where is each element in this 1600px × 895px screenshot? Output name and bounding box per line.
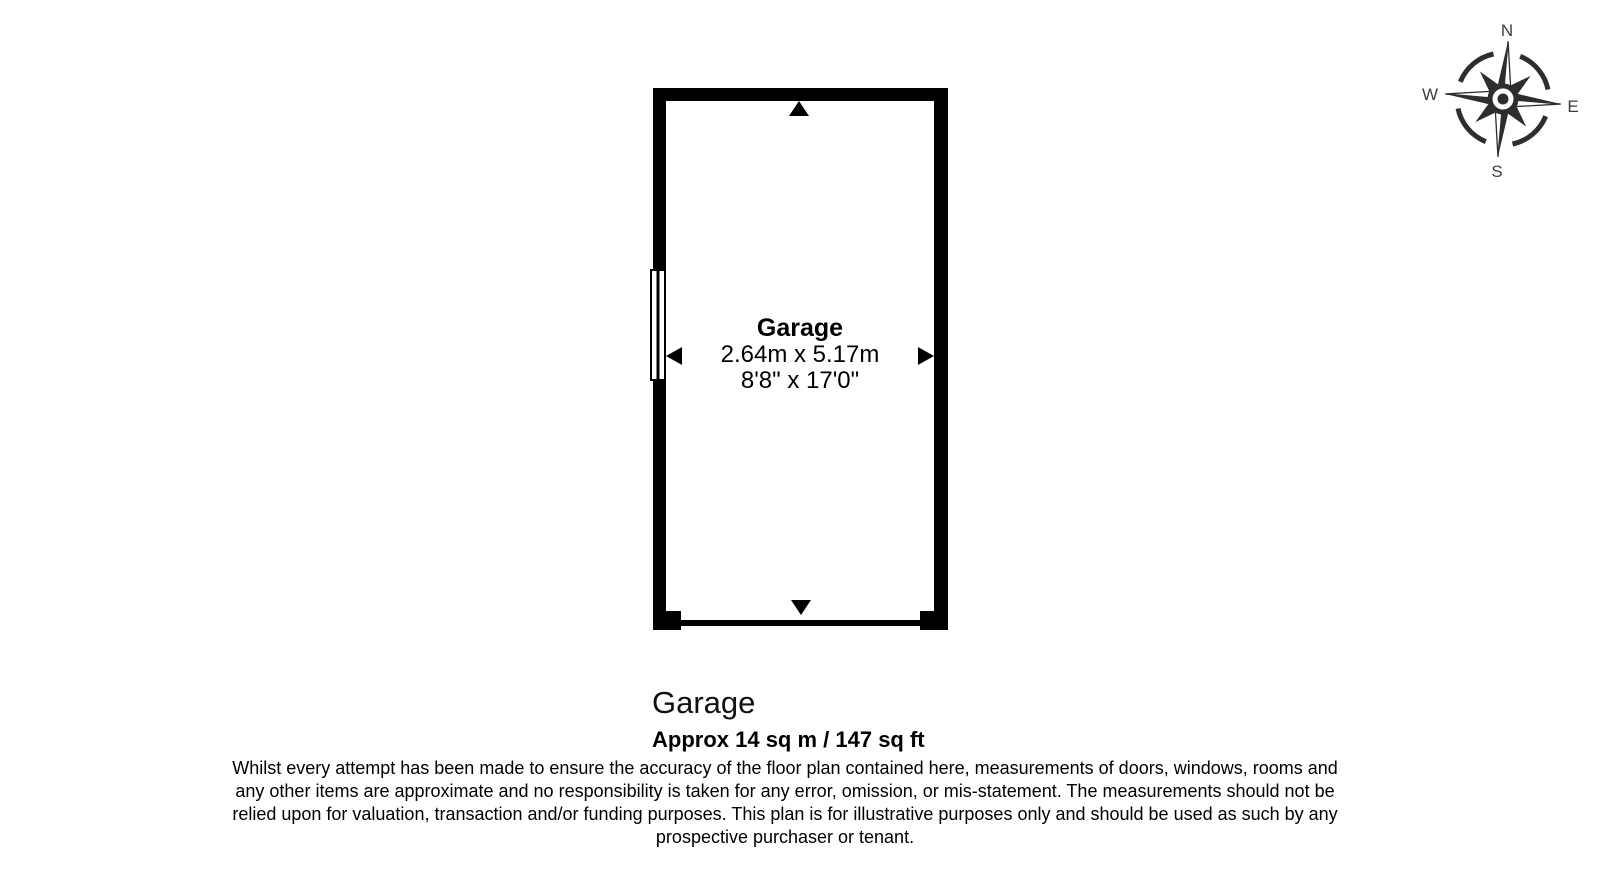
compass-south-label: S bbox=[1491, 162, 1502, 181]
room-label: Garage 2.64m x 5.17m 8'8" x 17'0" bbox=[650, 315, 950, 394]
disclaimer-line-1: Whilst every attempt has been made to en… bbox=[200, 757, 1370, 780]
room-name: Garage bbox=[650, 315, 950, 342]
disclaimer: Whilst every attempt has been made to en… bbox=[200, 757, 1370, 849]
floorplan-page: N E S W Garage 2.64m x 5.17m 8'8" x 17'0… bbox=[0, 0, 1600, 895]
wall-bottom-left-jamb bbox=[653, 611, 681, 630]
compass-north-label: N bbox=[1501, 21, 1513, 40]
room-dimensions-metric: 2.64m x 5.17m bbox=[650, 342, 950, 368]
arrow-down-icon bbox=[791, 600, 811, 615]
arrow-up-icon bbox=[789, 101, 809, 116]
compass-star bbox=[1440, 36, 1566, 162]
room-dimensions-imperial: 8'8" x 17'0" bbox=[650, 368, 950, 394]
garage-door-line bbox=[679, 620, 922, 626]
plan-area: Approx 14 sq m / 147 sq ft bbox=[652, 727, 925, 753]
wall-bottom-right-jamb bbox=[920, 611, 948, 630]
disclaimer-line-2: any other items are approximate and no r… bbox=[200, 780, 1370, 803]
disclaimer-line-3: relied upon for valuation, transaction a… bbox=[200, 803, 1370, 826]
wall-top bbox=[653, 88, 948, 101]
plan-title: Garage bbox=[652, 687, 755, 719]
disclaimer-line-4: prospective purchaser or tenant. bbox=[200, 826, 1370, 849]
compass-west-label: W bbox=[1422, 85, 1438, 104]
compass-rose-icon: N E S W bbox=[1380, 10, 1595, 185]
compass-east-label: E bbox=[1567, 97, 1578, 116]
